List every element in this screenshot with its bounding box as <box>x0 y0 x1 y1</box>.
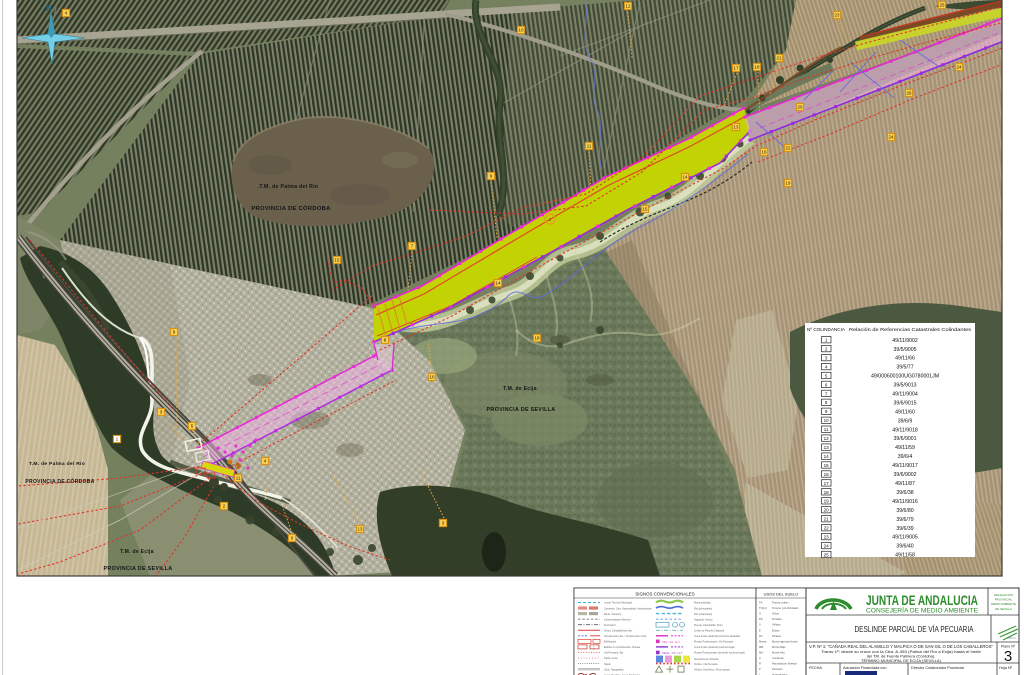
svg-text:Límite de Parcela Catastral: Límite de Parcela Catastral <box>694 629 725 632</box>
svg-text:18: 18 <box>824 490 830 495</box>
svg-text:39/6/80: 39/6/80 <box>896 508 913 514</box>
svg-text:4: 4 <box>825 365 828 370</box>
svg-text:P: P <box>759 667 761 671</box>
svg-text:Vía Pecuaria. Eje: Vía Pecuaria. Eje <box>604 652 624 655</box>
svg-text:Monte: Monte <box>759 639 767 643</box>
svg-text:Frutales: Frutales <box>772 617 782 621</box>
svg-text:MA: MA <box>759 650 763 654</box>
svg-text:Cota. Topográfica: Cota. Topográfica <box>604 668 624 671</box>
svg-text:Andalucía: Andalucía <box>1007 637 1017 640</box>
svg-text:N: N <box>46 4 52 13</box>
svg-text:Terreno cult./Arbolado: Terreno cult./Arbolado <box>772 606 799 610</box>
svg-text:Puntas Provisionales. Vía Pecu: Puntas Provisionales. Vía Pecuaria <box>694 641 734 644</box>
svg-text:18: 18 <box>535 336 540 341</box>
svg-text:23: 23 <box>824 535 830 540</box>
svg-text:Verod. Cañada/línea eltrc: Verod. Cañada/línea eltrc <box>604 629 633 632</box>
svg-text:Río (principales): Río (principales) <box>694 607 712 610</box>
svg-text:Relación de Referencias Catast: Relación de Referencias Catastrales Coli… <box>849 327 972 333</box>
svg-text:VEL. VA. LL7: VEL. VA. LL7 <box>662 640 680 644</box>
svg-text:Viñedo: Viñedo <box>772 623 781 627</box>
svg-text:19: 19 <box>824 499 830 504</box>
svg-text:14: 14 <box>496 281 501 286</box>
svg-text:10: 10 <box>519 28 524 33</box>
svg-text:Actuación Financiada con: Actuación Financiada con <box>843 666 886 670</box>
svg-text:Cartoentidades Nterritor: Cartoentidades Nterritor <box>604 618 631 621</box>
svg-text:49/11/9017: 49/11/9017 <box>892 463 918 469</box>
svg-text:TA: TA <box>759 601 762 605</box>
svg-text:49/11/87: 49/11/87 <box>895 481 915 487</box>
svg-text:Coníferas: Coníferas <box>772 656 784 660</box>
svg-text:Tapia. cerca: Tapia. cerca <box>604 657 618 660</box>
svg-text:22: 22 <box>824 526 830 531</box>
svg-text:9: 9 <box>825 409 828 414</box>
svg-text:Vértice. Vía Pecuaria: Vértice. Vía Pecuaria <box>694 663 718 666</box>
svg-text:39/6/9001: 39/6/9001 <box>893 436 916 442</box>
svg-text:39/5/9013: 39/5/9013 <box>893 383 916 389</box>
svg-text:3: 3 <box>825 356 828 361</box>
svg-text:1: 1 <box>825 338 828 343</box>
svg-text:26: 26 <box>907 91 912 96</box>
svg-text:Pinares: Pinares <box>772 634 782 638</box>
svg-text:24: 24 <box>957 65 962 70</box>
svg-text:24: 24 <box>824 544 830 549</box>
svg-text:Repoblación forestal: Repoblación forestal <box>772 662 797 666</box>
svg-text:Línea límite (deslinde) Anchur: Línea límite (deslinde) Anchura (deslind… <box>694 635 740 638</box>
svg-text:Director Colaborador Provincia: Director Colaborador Provincial <box>911 666 964 670</box>
svg-text:20: 20 <box>824 508 830 513</box>
svg-text:39/6/39: 39/6/39 <box>896 526 913 532</box>
svg-text:R: R <box>759 662 761 666</box>
svg-text:TÉRMINO MUNICIPAL DE ECIJA (SE: TÉRMINO MUNICIPAL DE ECIJA (SEVILLA) <box>861 658 941 663</box>
svg-text:17: 17 <box>824 481 830 486</box>
svg-text:16: 16 <box>824 472 830 477</box>
svg-text:14: 14 <box>683 175 688 180</box>
svg-text:Monte Alto: Monte Alto <box>772 650 785 654</box>
svg-text:21: 21 <box>824 517 830 522</box>
svg-text:USOS DEL SUELO: USOS DEL SUELO <box>764 592 799 597</box>
svg-text:Carretera, Ctra. Nacional/aut.: Carretera, Ctra. Nacional/aut. Autonómic… <box>604 607 652 610</box>
svg-text:Eriazo: Eriazo <box>772 628 780 632</box>
svg-text:CONSEJERÍA DE MEDIO AMBIENTE: CONSEJERÍA DE MEDIO AMBIENTE <box>866 606 978 615</box>
svg-text:49/11/58: 49/11/58 <box>895 553 915 559</box>
svg-text:Puente. Alcantarilla. Pozo: Puente. Alcantarilla. Pozo <box>694 624 723 627</box>
svg-text:5: 5 <box>825 373 828 378</box>
svg-text:DELEGACIÓN: DELEGACIÓN <box>994 592 1013 597</box>
svg-text:49/11/9005: 49/11/9005 <box>892 535 918 541</box>
svg-text:SIGNOS CONVENCIONALES: SIGNOS CONVENCIONALES <box>635 592 694 597</box>
svg-text:Pecuario: Pecuario <box>772 667 783 671</box>
svg-text:DESLINDE PARCIAL DE VÍA PECUAR: DESLINDE PARCIAL DE VÍA PECUARIA <box>855 624 974 634</box>
svg-text:Tierras cultivo: Tierras cultivo <box>772 601 789 605</box>
svg-text:49/000600100UG0780001JM: 49/000600100UG0780001JM <box>871 374 939 380</box>
svg-text:11: 11 <box>236 476 241 481</box>
svg-text:PROVINCIA DE SEVILLA: PROVINCIA DE SEVILLA <box>487 407 556 413</box>
svg-text:13: 13 <box>358 527 363 532</box>
svg-text:15: 15 <box>824 463 830 468</box>
svg-text:Edificación: Edificación <box>604 641 617 644</box>
svg-text:24: 24 <box>889 135 894 140</box>
svg-text:12: 12 <box>626 4 631 9</box>
svg-text:39/6/9: 39/6/9 <box>898 418 913 424</box>
svg-text:FECHA: FECHA <box>809 666 822 670</box>
svg-text:Nº COLINDANCIA: Nº COLINDANCIA <box>807 327 846 333</box>
svg-text:15: 15 <box>643 207 648 212</box>
svg-text:PROVINCIA DE CÓRDOBA: PROVINCIA DE CÓRDOBA <box>251 204 331 212</box>
svg-text:Construcción aisl. / Construcc: Construcción aisl. / Construcción rural <box>604 635 647 638</box>
svg-text:Vaguada. Arroyo: Vaguada. Arroyo <box>694 618 713 621</box>
svg-text:39/6/9002: 39/6/9002 <box>893 472 916 478</box>
svg-text:49/11/9004: 49/11/9004 <box>892 392 918 398</box>
svg-text:PROVINCIAL: PROVINCIAL <box>995 598 1013 602</box>
svg-text:V: V <box>759 623 761 627</box>
svg-text:17: 17 <box>734 66 739 71</box>
svg-text:21: 21 <box>777 56 782 61</box>
svg-text:39/5/77: 39/5/77 <box>896 365 913 371</box>
svg-text:Línea límite (deslinde) Anchur: Línea límite (deslinde) Anchura legal <box>694 646 735 649</box>
svg-text:39/6/38: 39/6/38 <box>896 490 913 496</box>
svg-text:20: 20 <box>798 105 803 110</box>
svg-text:MB: MB <box>759 645 763 649</box>
svg-text:25: 25 <box>940 3 945 8</box>
svg-text:49/11/60: 49/11/60 <box>895 409 915 415</box>
svg-text:23: 23 <box>835 13 840 18</box>
svg-text:14: 14 <box>824 454 830 459</box>
svg-text:Tapial: Tapial <box>604 663 611 666</box>
svg-text:Ferrocarril: Ferrocarril <box>604 624 616 627</box>
svg-text:DE SEVILLA: DE SEVILLA <box>995 607 1012 611</box>
svg-text:PA: PA <box>759 634 763 638</box>
svg-text:T.M. de Ecija: T.M. de Ecija <box>503 386 537 392</box>
svg-text:FR: FR <box>759 617 763 621</box>
svg-text:10: 10 <box>824 418 830 423</box>
svg-text:49/11/9016: 49/11/9016 <box>892 499 918 505</box>
svg-text:Rede. Caminos: Rede. Caminos <box>604 613 622 616</box>
svg-text:39/5/9005: 39/5/9005 <box>893 347 916 353</box>
svg-text:49/11/59: 49/11/59 <box>895 445 915 451</box>
svg-text:Superficie de intrusión: Superficie de intrusión <box>694 658 719 661</box>
svg-text:7: 7 <box>825 391 828 396</box>
svg-text:25: 25 <box>824 552 830 557</box>
svg-text:Puntas Provisionales (deslinde: Puntas Provisionales (deslinde anchura l… <box>694 652 745 655</box>
svg-text:39/6/4: 39/6/4 <box>898 454 913 460</box>
svg-text:15: 15 <box>335 258 340 263</box>
svg-text:39/6/79: 39/6/79 <box>896 517 913 523</box>
svg-text:T.M. de Ecija: T.M. de Ecija <box>120 549 154 555</box>
svg-text:PROVINCIA DE SEVILLA: PROVINCIA DE SEVILLA <box>104 566 173 572</box>
svg-text:49/11/66: 49/11/66 <box>895 356 915 362</box>
svg-text:19: 19 <box>786 181 791 186</box>
svg-text:6: 6 <box>825 382 828 387</box>
svg-text:13: 13 <box>734 125 739 130</box>
svg-text:Vértice Geodésico. Punto apoyo: Vértice Geodésico. Punto apoyo <box>694 668 730 671</box>
svg-text:VEOL. VS. LL7: VEOL. VS. LL7 <box>662 651 683 655</box>
svg-text:Monte agrícola-forest.: Monte agrícola-forest. <box>772 639 798 643</box>
svg-text:18: 18 <box>755 65 760 70</box>
svg-text:39/6/9015: 39/6/9015 <box>893 400 916 406</box>
svg-text:10: 10 <box>430 375 435 380</box>
svg-text:TO(m): TO(m) <box>759 606 767 610</box>
svg-text:Hoja Nº: Hoja Nº <box>999 666 1013 670</box>
svg-text:22: 22 <box>786 146 791 151</box>
svg-text:12: 12 <box>824 436 830 441</box>
svg-text:O: O <box>759 612 761 616</box>
svg-text:Masa arbolada: Masa arbolada <box>694 602 711 605</box>
svg-text:2: 2 <box>825 347 828 352</box>
svg-text:Monte Bajo: Monte Bajo <box>772 645 786 649</box>
svg-text:49/11/9018: 49/11/9018 <box>892 427 918 433</box>
svg-text:13: 13 <box>824 445 830 450</box>
svg-text:Olivar: Olivar <box>772 612 779 616</box>
svg-text:T.M. de Palma del Río: T.M. de Palma del Río <box>29 461 85 467</box>
svg-text:C: C <box>759 656 761 660</box>
svg-text:8: 8 <box>825 400 828 405</box>
svg-text:16: 16 <box>762 150 767 155</box>
svg-text:MEDIO AMBIENTE: MEDIO AMBIENTE <box>991 602 1016 606</box>
svg-text:Edificio en Construcción. Ruin: Edificio en Construcción. Ruinas <box>604 646 641 649</box>
svg-text:3: 3 <box>1004 648 1012 665</box>
svg-text:39/6/40: 39/6/40 <box>896 544 913 550</box>
svg-text:Río (estaciones): Río (estaciones) <box>694 613 712 616</box>
svg-text:JUNTA DE ANDALUCIA: JUNTA DE ANDALUCIA <box>866 592 978 608</box>
svg-text:E: E <box>759 628 761 632</box>
svg-text:.T.M. de Palma del Río: .T.M. de Palma del Río <box>258 184 319 190</box>
svg-text:11: 11 <box>824 427 829 432</box>
svg-text:Límite Término Municipal: Límite Término Municipal <box>604 602 632 605</box>
svg-text:49/11/9002: 49/11/9002 <box>892 338 918 344</box>
svg-text:11: 11 <box>587 144 592 149</box>
svg-text:PROVINCIA DE CÓRDOBA: PROVINCIA DE CÓRDOBA <box>25 477 94 485</box>
